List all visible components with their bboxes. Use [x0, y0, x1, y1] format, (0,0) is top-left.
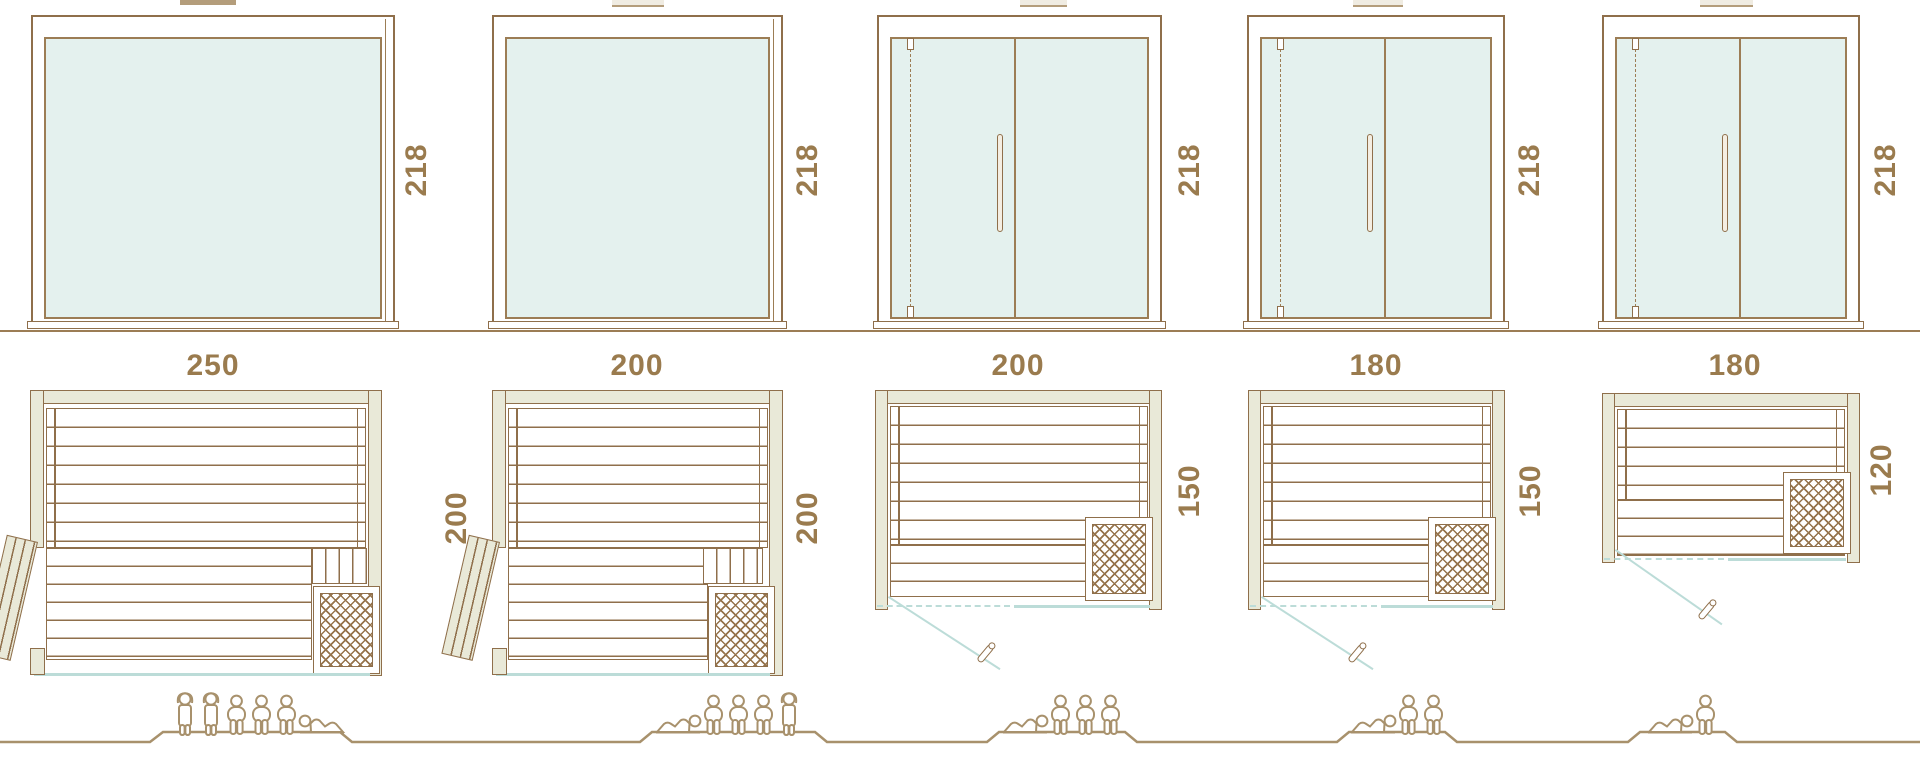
- door-hinge-icon: [1277, 306, 1284, 318]
- heater-grille-icon: [1435, 524, 1489, 594]
- lying-figure-icon: [656, 716, 700, 733]
- door-swing-line: [1261, 596, 1374, 670]
- door-threshold: [30, 648, 45, 675]
- heater-grille-icon: [715, 593, 768, 667]
- wall: [875, 390, 888, 610]
- capacity-figures: [0, 690, 1920, 770]
- frame-edge: [773, 19, 775, 324]
- front-elevation-1: [31, 15, 395, 328]
- door-opening-dashed-line: [877, 605, 1010, 607]
- wall: [1248, 390, 1261, 610]
- bench-step: [312, 548, 367, 584]
- depth-dimension: 150: [1174, 445, 1206, 537]
- glass-door-panel: [890, 37, 1149, 319]
- height-dimension: 218: [792, 124, 824, 216]
- sill: [873, 321, 1166, 329]
- standing-figure-icon: [782, 693, 796, 735]
- heater: [1085, 517, 1153, 601]
- frame-edge: [385, 19, 387, 324]
- open-door-leaf: [0, 535, 38, 661]
- height-dimension: 218: [1174, 124, 1206, 216]
- height-dimension: 218: [1514, 124, 1546, 216]
- wall: [1248, 390, 1505, 404]
- heater: [1783, 472, 1851, 554]
- roof-vent-icon: [1700, 0, 1753, 7]
- glass-door-panel: [1615, 37, 1847, 319]
- lying-figure-icon: [300, 716, 344, 733]
- wall: [875, 390, 1162, 404]
- heater-grille-icon: [1790, 479, 1844, 547]
- door-hinge-line: [1635, 39, 1636, 317]
- front-elevation-2: [492, 15, 783, 328]
- door-hinge-icon: [1277, 38, 1284, 50]
- depth-dimension: 120: [1866, 424, 1898, 516]
- door-divider: [1739, 39, 1741, 317]
- lower-bench: [508, 548, 708, 660]
- wall: [492, 390, 506, 548]
- heater-grille-icon: [1092, 524, 1146, 594]
- sill: [1598, 321, 1864, 329]
- wall: [1602, 393, 1860, 407]
- wall: [30, 390, 44, 548]
- glass-panel: [505, 37, 770, 319]
- sitting-figure-icon: [1052, 696, 1069, 734]
- sitting-figure-icon: [278, 696, 295, 734]
- wall: [30, 390, 382, 404]
- door-opening-dashed-line: [1250, 605, 1377, 607]
- height-dimension: 218: [401, 124, 433, 216]
- depth-dimension: 150: [1515, 445, 1547, 537]
- height-dimension: 218: [1870, 124, 1902, 216]
- glass-panel: [44, 37, 382, 319]
- heater: [1428, 517, 1496, 601]
- door-hinge-line: [1280, 39, 1281, 317]
- sitting-figure-icon: [730, 696, 747, 734]
- width-dimension: 180: [1326, 350, 1426, 382]
- sitting-figure-icon: [1697, 696, 1714, 734]
- bench-step: [703, 548, 763, 584]
- front-elevation-5: [1602, 15, 1860, 328]
- depth-dimension: 200: [792, 472, 824, 564]
- door-threshold: [492, 648, 507, 675]
- glass-door-panel: [1260, 37, 1492, 319]
- wall: [1602, 393, 1615, 563]
- sitting-figure-icon: [1102, 696, 1119, 734]
- front-elevation-4: [1247, 15, 1505, 328]
- lower-bench: [46, 548, 312, 660]
- front-elevation-3: [877, 15, 1162, 328]
- door-opening-dashed-line: [1604, 558, 1724, 560]
- lying-figure-icon: [1003, 716, 1047, 733]
- door-handle: [997, 134, 1003, 232]
- glass-front-line: [1014, 605, 1150, 608]
- glass-front-line: [34, 673, 370, 676]
- roof-vent-icon: [612, 0, 664, 7]
- ground-line: [0, 330, 1920, 332]
- glass-front-line: [496, 673, 770, 676]
- sitting-figure-icon: [228, 696, 245, 734]
- sill: [27, 321, 399, 329]
- sill: [1243, 321, 1509, 329]
- width-dimension: 180: [1685, 350, 1785, 382]
- sauna-size-diagram: 218 218 218 218 218 250 200 200 180 180 …: [0, 0, 1920, 770]
- sitting-figure-icon: [705, 696, 722, 734]
- heater: [708, 586, 775, 674]
- lying-figure-icon: [1351, 716, 1395, 733]
- upper-bench: [46, 408, 366, 548]
- door-hinge-line: [910, 39, 911, 317]
- sill: [488, 321, 787, 329]
- glass-front-line: [1728, 558, 1846, 561]
- door-hinge-icon: [907, 306, 914, 318]
- door-divider: [1384, 39, 1386, 317]
- sitting-figure-icon: [755, 696, 772, 734]
- wall: [492, 390, 783, 404]
- sitting-figure-icon: [1400, 696, 1417, 734]
- sitting-figure-icon: [1425, 696, 1442, 734]
- width-dimension: 200: [587, 350, 687, 382]
- width-dimension: 200: [968, 350, 1068, 382]
- roof-vent-icon: [1353, 0, 1403, 7]
- door-handle: [1722, 134, 1728, 232]
- upper-bench: [508, 408, 768, 548]
- roof-vent-icon: [1020, 0, 1067, 7]
- door-hinge-icon: [1632, 306, 1639, 318]
- door-hinge-icon: [1632, 38, 1639, 50]
- glass-front-line: [1381, 605, 1493, 608]
- roof-vent-icon: [180, 0, 236, 5]
- door-handle: [1367, 134, 1373, 232]
- door-hinge-icon: [907, 38, 914, 50]
- heater-grille-icon: [320, 593, 373, 667]
- heater: [313, 586, 380, 674]
- standing-figure-icon: [204, 693, 218, 735]
- door-divider: [1014, 39, 1016, 317]
- standing-figure-icon: [178, 693, 192, 735]
- sitting-figure-icon: [1077, 696, 1094, 734]
- sitting-figure-icon: [253, 696, 270, 734]
- width-dimension: 250: [163, 350, 263, 382]
- lying-figure-icon: [1648, 716, 1692, 733]
